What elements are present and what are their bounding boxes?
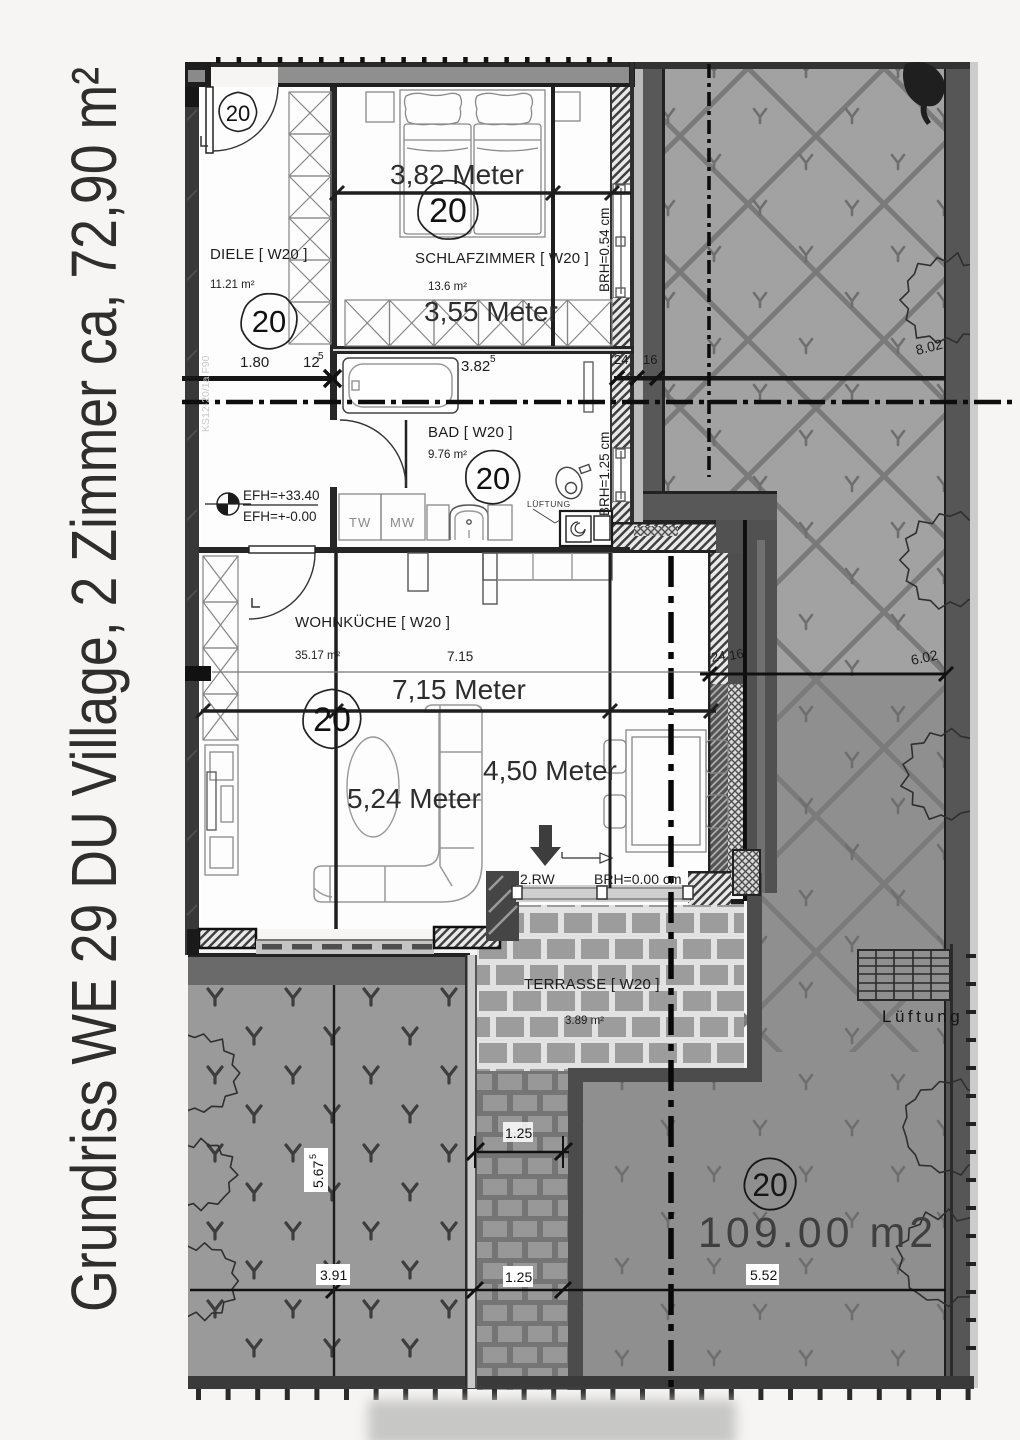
svg-text:109.00 m2: 109.00 m2 — [698, 1209, 937, 1257]
svg-text:20: 20 — [429, 192, 467, 230]
svg-text:3.82: 3.82 — [461, 358, 490, 375]
svg-text:5: 5 — [490, 354, 496, 365]
svg-text:SCHLAFZIMMER [ W20 ]: SCHLAFZIMMER [ W20 ] — [415, 250, 589, 267]
svg-text:BRH=1.25 cm: BRH=1.25 cm — [597, 432, 612, 516]
svg-text:5: 5 — [318, 351, 324, 362]
svg-text:Grundriss WE 29 DU Village, 2: Grundriss WE 29 DU Village, 2 Zimmer ca,… — [58, 67, 130, 1312]
svg-text:BRH=0.54 cm: BRH=0.54 cm — [597, 208, 612, 292]
svg-text:EFH=+33.40: EFH=+33.40 — [243, 488, 320, 503]
svg-text:7.15: 7.15 — [447, 649, 473, 664]
svg-text:5.52: 5.52 — [750, 1267, 777, 1283]
svg-text:13.6 m²: 13.6 m² — [428, 281, 467, 293]
svg-text:5,24 Meter: 5,24 Meter — [347, 783, 481, 814]
svg-text:4,50 Meter: 4,50 Meter — [483, 755, 617, 786]
svg-text:3,82 Meter: 3,82 Meter — [390, 159, 524, 190]
svg-text:3.89 m²: 3.89 m² — [565, 1015, 604, 1027]
svg-text:20: 20 — [752, 1167, 788, 1203]
svg-text:16: 16 — [643, 352, 657, 367]
svg-text:KS12-20/1a F90: KS12-20/1a F90 — [200, 355, 212, 432]
svg-text:1.25: 1.25 — [505, 1125, 532, 1141]
svg-text:9.76 m²: 9.76 m² — [428, 449, 467, 461]
svg-text:Lüftung: Lüftung — [882, 1007, 963, 1026]
svg-text:DIELE [ W20 ]: DIELE [ W20 ] — [210, 246, 308, 263]
svg-text:11.21 m²: 11.21 m² — [210, 279, 255, 291]
svg-text:24: 24 — [710, 648, 727, 665]
svg-text:EFH=+-0.00: EFH=+-0.00 — [243, 509, 317, 524]
svg-text:20: 20 — [476, 461, 510, 496]
svg-text:20: 20 — [226, 101, 250, 126]
svg-text:1.80: 1.80 — [240, 354, 269, 371]
svg-text:3.91: 3.91 — [320, 1267, 347, 1283]
svg-text:5.67: 5.67 — [310, 1161, 326, 1188]
svg-text:WOHNKÜCHE [ W20 ]: WOHNKÜCHE [ W20 ] — [295, 613, 450, 631]
svg-text:TERRASSE [ W20 ]: TERRASSE [ W20 ] — [524, 976, 660, 993]
svg-text:BRH=0.00 cm: BRH=0.00 cm — [594, 871, 682, 887]
svg-text:16: 16 — [728, 646, 745, 663]
svg-text:2.RW: 2.RW — [520, 871, 556, 887]
svg-text:3,55 Meter: 3,55 Meter — [424, 296, 558, 327]
svg-text:20: 20 — [252, 304, 286, 339]
svg-text:20: 20 — [313, 701, 351, 739]
svg-text:35.17 m²: 35.17 m² — [295, 650, 341, 662]
svg-text:24: 24 — [614, 352, 628, 367]
svg-text:LÜFTUNG: LÜFTUNG — [527, 499, 571, 509]
svg-text:5: 5 — [308, 1154, 318, 1159]
svg-text:BAD [ W20 ]: BAD [ W20 ] — [428, 424, 513, 441]
svg-text:7,15 Meter: 7,15 Meter — [392, 674, 526, 705]
svg-text:TW: TW — [349, 515, 371, 530]
svg-text:1.25: 1.25 — [505, 1269, 532, 1285]
svg-text:MW: MW — [390, 515, 415, 530]
